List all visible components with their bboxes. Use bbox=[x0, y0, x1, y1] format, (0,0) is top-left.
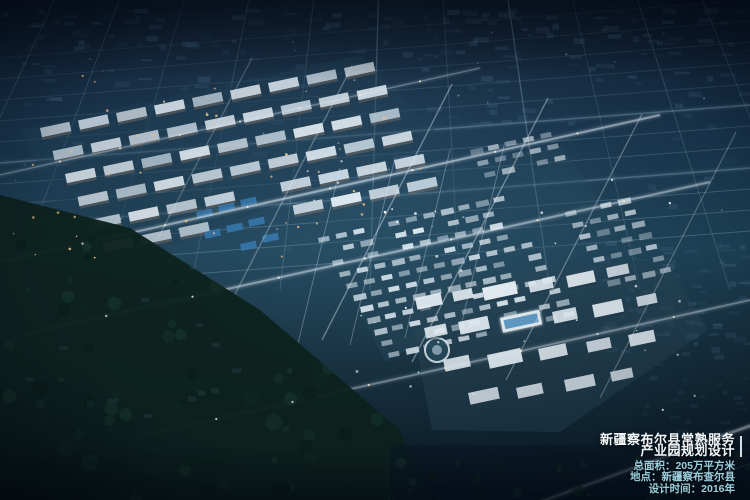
city-aerial-render bbox=[0, 0, 750, 500]
project-caption: 新疆察布尔县常熟服务 产业园规划设计 总面积：205万平方米 地点：新疆察布查尔… bbox=[600, 434, 742, 496]
top-shade bbox=[0, 0, 750, 80]
masterplan-rendering: 新疆察布尔县常熟服务 产业园规划设计 总面积：205万平方米 地点：新疆察布查尔… bbox=[0, 0, 750, 500]
project-title: 新疆察布尔县常熟服务 产业园规划设计 bbox=[600, 434, 742, 456]
stat-location: 地点：新疆察布查尔县 bbox=[600, 472, 735, 484]
project-stats: 总面积：205万平方米 地点：新疆察布查尔县 设计时间：2016年 bbox=[600, 461, 742, 496]
title-rule bbox=[740, 436, 742, 457]
corner-shade bbox=[0, 250, 400, 500]
stat-design-year: 设计时间：2016年 bbox=[600, 484, 735, 496]
